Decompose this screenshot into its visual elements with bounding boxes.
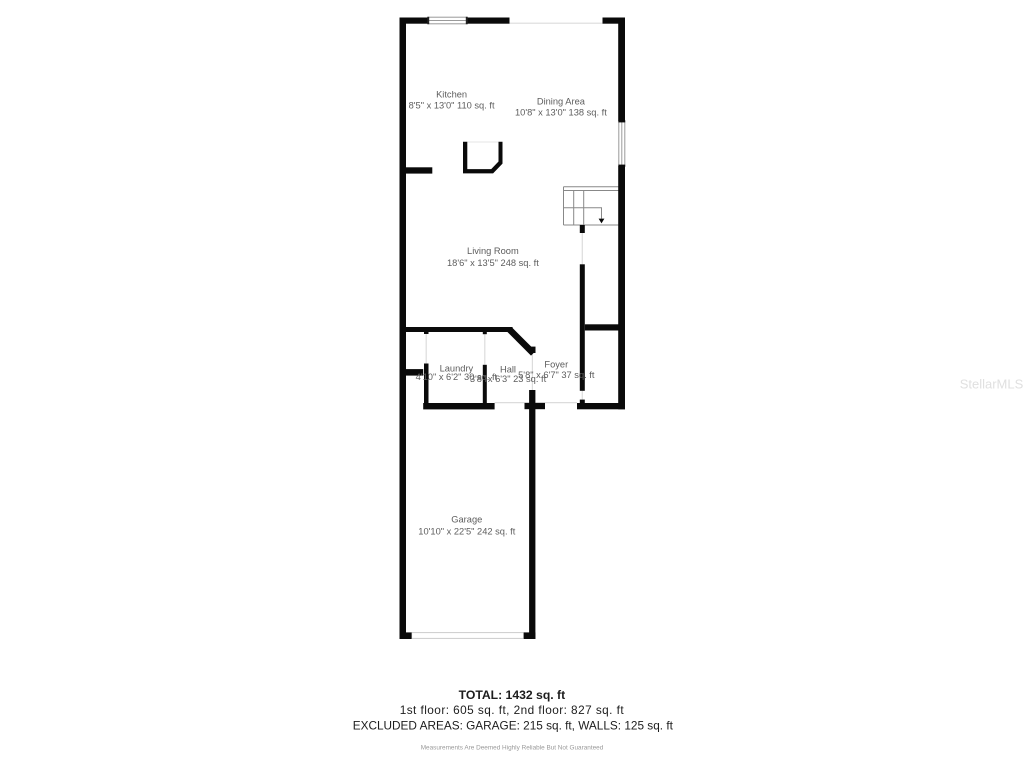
svg-text:10'10" x 22'5" 242 sq. ft: 10'10" x 22'5" 242 sq. ft [418, 526, 515, 536]
svg-text:1st floor: 605 sq. ft, 2nd flo: 1st floor: 605 sq. ft, 2nd floor: 827 sq… [400, 703, 625, 717]
svg-text:Garage: Garage [451, 515, 482, 525]
svg-text:5'8" x 6'7" 37 sq. ft: 5'8" x 6'7" 37 sq. ft [518, 370, 595, 380]
svg-text:StellarMLS: StellarMLS [960, 377, 1024, 392]
svg-text:Foyer: Foyer [544, 359, 568, 369]
svg-text:Living Room: Living Room [467, 246, 519, 256]
svg-text:Measurements Are Deemed Highly: Measurements Are Deemed Highly Reliable … [421, 744, 604, 751]
svg-text:8'5" x 13'0" 110 sq. ft: 8'5" x 13'0" 110 sq. ft [409, 100, 495, 110]
svg-text:EXCLUDED AREAS: GARAGE: 215 sq: EXCLUDED AREAS: GARAGE: 215 sq. ft, WALL… [353, 718, 674, 732]
svg-text:Dining Area: Dining Area [537, 97, 586, 107]
svg-text:TOTAL: 1432 sq. ft: TOTAL: 1432 sq. ft [459, 688, 566, 702]
svg-text:Kitchen: Kitchen [436, 89, 467, 99]
svg-text:10'8" x 13'0" 138 sq. ft: 10'8" x 13'0" 138 sq. ft [515, 107, 607, 117]
svg-text:18'6" x 13'5" 248 sq. ft: 18'6" x 13'5" 248 sq. ft [447, 258, 539, 268]
svg-text:Hall: Hall [500, 365, 516, 375]
